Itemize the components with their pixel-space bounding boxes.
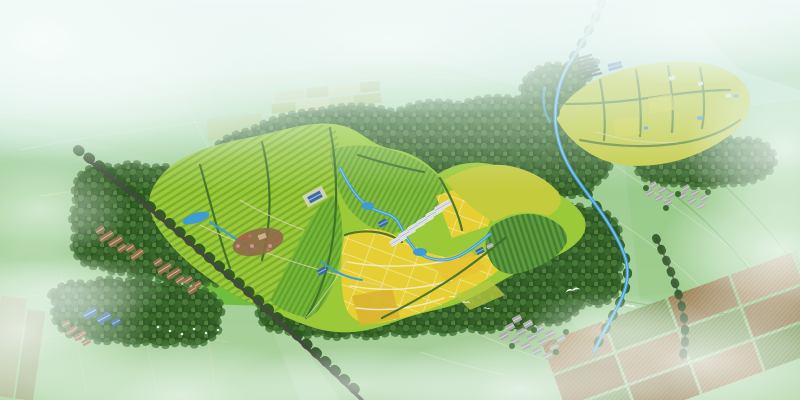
scene-canvas: Aerial bird's-eye master-plan rendering … — [0, 0, 800, 400]
aerial-rendering: Aerial bird's-eye master-plan rendering … — [0, 0, 800, 400]
